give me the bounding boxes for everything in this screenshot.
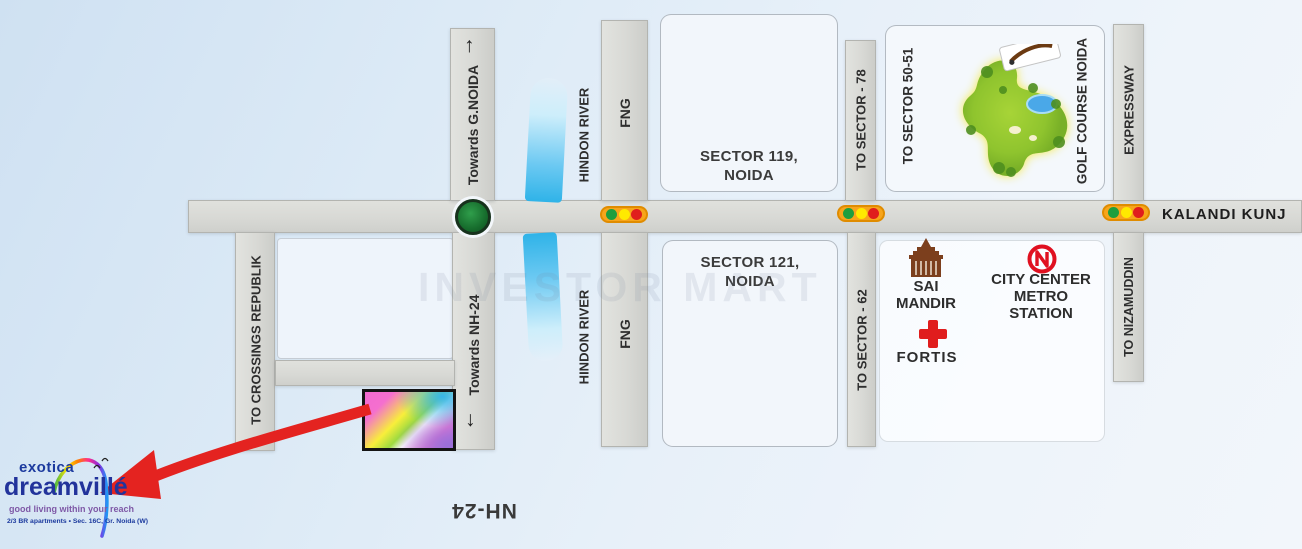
hindon-river-upper (525, 77, 568, 203)
yellow-light (619, 209, 630, 220)
nh24-label: NH-24 (436, 498, 532, 522)
green-light (1108, 207, 1119, 218)
towards-nh24-label: Towards NH-24 (466, 295, 482, 396)
golf-course-noida-label: GOLF COURSE NOIDA (1075, 38, 1090, 184)
green-light (606, 209, 617, 220)
red-light (631, 209, 642, 220)
hindon-river-upper-label: HINDON RIVER (577, 88, 592, 183)
yellow-light (856, 208, 867, 219)
yellow-light (1121, 207, 1132, 218)
green-light (843, 208, 854, 219)
sector-119-label-line2: NOIDA (661, 167, 837, 186)
sai-mandir-temple-icon (902, 238, 950, 280)
sector-62-label: TO SECTOR - 62 (855, 289, 870, 390)
brand-dreamville: dreamvillé (4, 473, 128, 502)
fng-south-label: FNG (617, 319, 633, 349)
golf-course-illustration (941, 44, 1091, 189)
city-center-metro-label: CITY CENTER METRO STATION (972, 272, 1110, 322)
golf-club-icon (999, 44, 1061, 71)
brand-subline: 2/3 BR apartments • Sec. 16C, Gr. Noida … (7, 518, 148, 525)
roundabout-icon (455, 199, 491, 235)
sai-mandir-label: SAI MANDIR (886, 279, 966, 313)
exotica-dreamville-logo: exotica dreamvillé good living within yo… (2, 446, 160, 548)
towards-gnoida-label: Towards G.NOIDA (465, 65, 481, 185)
hospital-cross-icon (917, 318, 949, 350)
brand-tagline: good living within your reach (9, 504, 134, 514)
golf-to-sector-50-51-label: TO SECTOR 50-51 (901, 48, 916, 165)
hindon-river-lower-label: HINDON RIVER (577, 290, 592, 385)
site-location-marker (362, 389, 456, 451)
sector-119-block: SECTOR 119, NOIDA (660, 14, 838, 192)
traffic-light-icon (1102, 204, 1150, 221)
crossings-republik-label: TO CROSSINGS REPUBLIK (249, 255, 264, 425)
down-arrow-icon: ↓ (465, 408, 476, 432)
sector-119-label-line1: SECTOR 119, (661, 148, 837, 167)
expressway-label: EXPRESSWAY (1122, 65, 1137, 155)
fortis-label: FORTIS (886, 350, 968, 367)
traffic-light-icon (837, 205, 885, 222)
red-light (868, 208, 879, 219)
location-map: SECTOR 119, NOIDA SECTOR 121, NOIDA (0, 0, 1302, 549)
nizamuddin-label: TO NIZAMUDDIN (1122, 257, 1136, 357)
south-link-road (275, 360, 455, 386)
golf-course-block: TO SECTOR 50-51 GOLF COURSE NOIDA (885, 25, 1105, 192)
traffic-light-icon (600, 206, 648, 223)
red-light (1133, 207, 1144, 218)
fng-north-label: FNG (617, 98, 633, 128)
sector-78-label: TO SECTOR - 78 (854, 69, 869, 170)
kalandi-kunj-label: KALANDI KUNJ (1162, 206, 1287, 223)
up-arrow-icon: ↑ (464, 34, 475, 58)
